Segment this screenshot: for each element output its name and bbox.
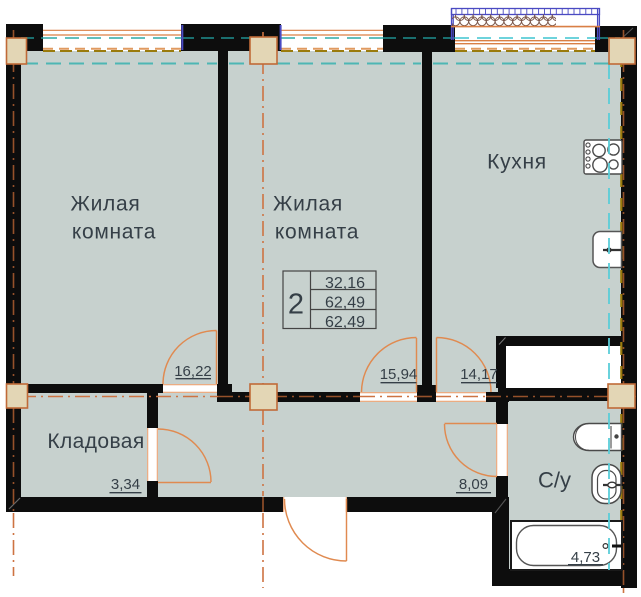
svg-text:15,94: 15,94 — [380, 366, 418, 383]
svg-text:Кухня: Кухня — [487, 151, 547, 174]
svg-text:2: 2 — [288, 289, 304, 321]
svg-text:3,34: 3,34 — [111, 476, 140, 493]
svg-text:Жилая: Жилая — [71, 193, 141, 216]
svg-text:Жилая: Жилая — [273, 193, 343, 216]
svg-text:4,73: 4,73 — [571, 549, 600, 566]
svg-text:комната: комната — [72, 221, 156, 244]
svg-text:16,22: 16,22 — [174, 363, 212, 380]
svg-text:комната: комната — [275, 221, 359, 244]
svg-text:62,49: 62,49 — [325, 314, 365, 331]
svg-text:32,16: 32,16 — [325, 275, 365, 292]
svg-text:С/у: С/у — [538, 468, 571, 493]
svg-text:Кладовая: Кладовая — [47, 430, 144, 453]
svg-text:8,09: 8,09 — [459, 476, 488, 493]
svg-text:14,17: 14,17 — [460, 366, 498, 383]
svg-text:62,49: 62,49 — [325, 295, 365, 312]
